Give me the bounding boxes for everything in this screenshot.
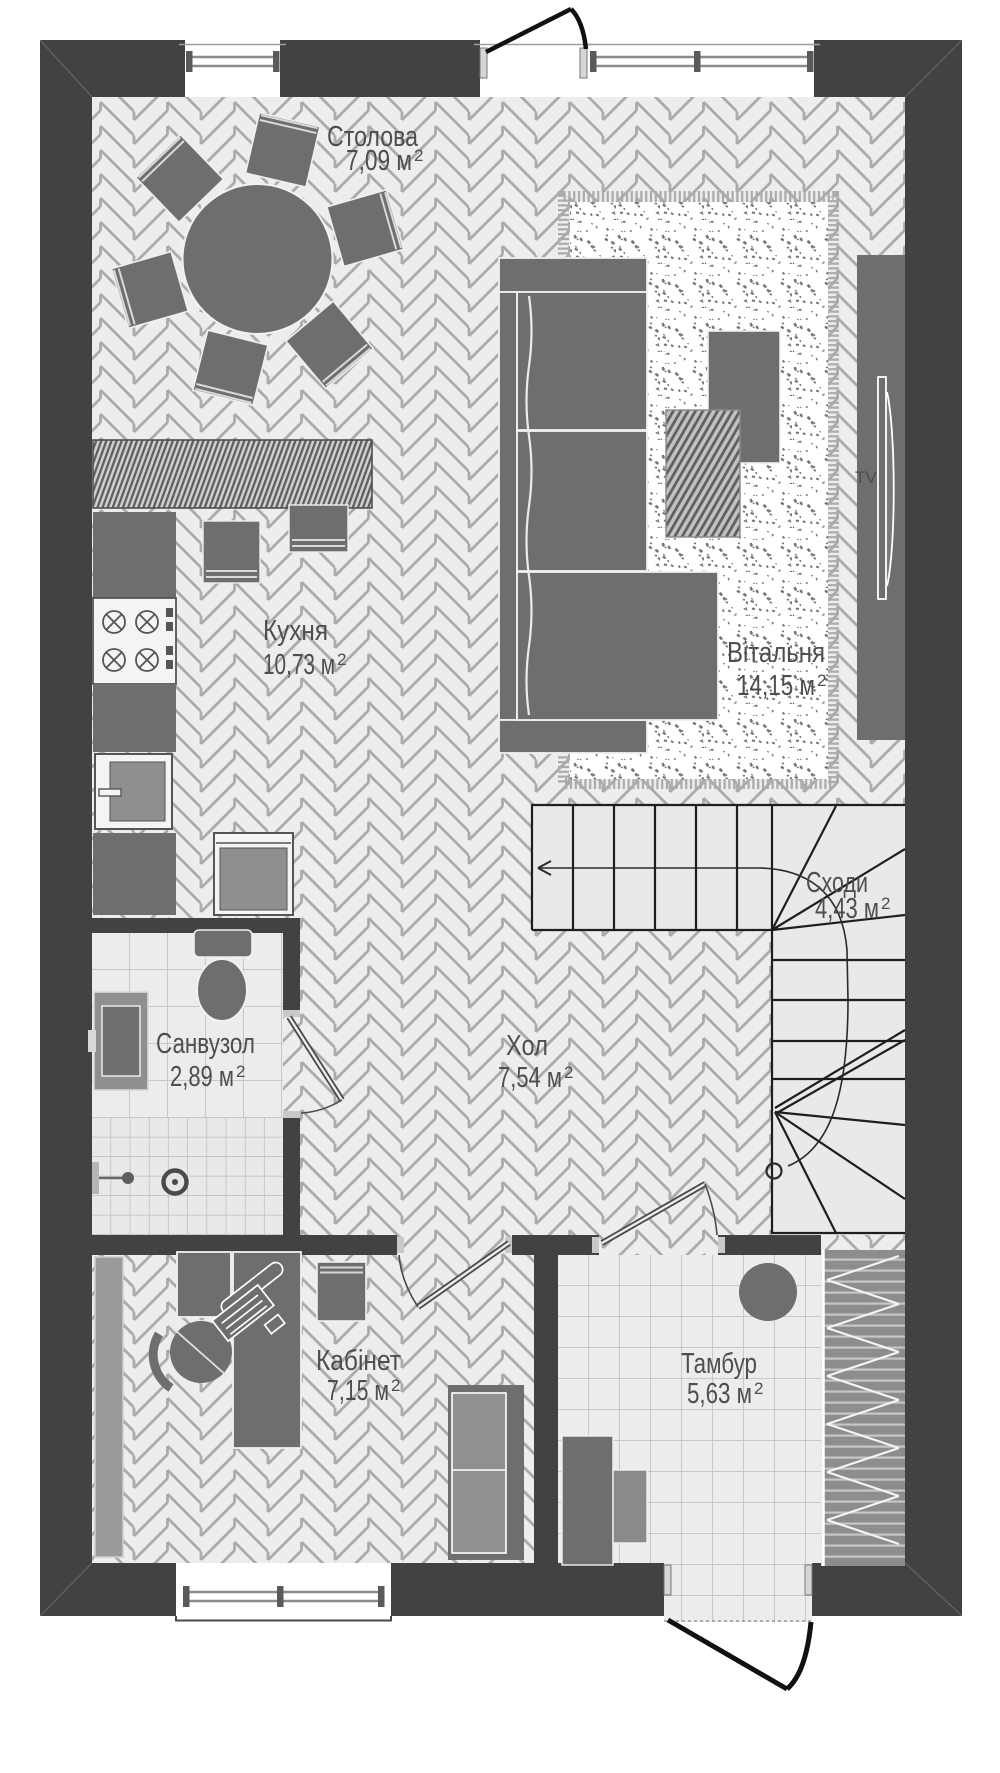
svg-text:Хол: Хол: [506, 1030, 548, 1062]
svg-text:Санвузол: Санвузол: [156, 1028, 255, 1060]
svg-text:Кухня: Кухня: [263, 615, 328, 647]
svg-text:Кабінет: Кабінет: [316, 1345, 401, 1377]
svg-text:4,43 м: 4,43 м: [815, 893, 879, 925]
svg-text:2: 2: [881, 894, 890, 913]
svg-text:7,15 м: 7,15 м: [327, 1375, 389, 1407]
svg-text:2: 2: [817, 671, 826, 690]
svg-text:7,54 м: 7,54 м: [498, 1062, 562, 1094]
svg-text:2: 2: [564, 1063, 573, 1082]
svg-text:14,15 м: 14,15 м: [737, 670, 815, 702]
svg-text:2: 2: [337, 650, 346, 669]
svg-text:10,73 м: 10,73 м: [263, 649, 335, 681]
svg-text:5,63 м: 5,63 м: [687, 1378, 752, 1410]
svg-text:Тамбур: Тамбур: [681, 1348, 757, 1380]
svg-text:2: 2: [391, 1376, 400, 1395]
svg-text:2: 2: [414, 146, 423, 165]
svg-text:2: 2: [754, 1379, 763, 1398]
svg-text:2: 2: [236, 1062, 245, 1081]
svg-text:TV: TV: [855, 468, 877, 487]
svg-text:7,09 м: 7,09 м: [346, 145, 412, 177]
svg-text:2,89 м: 2,89 м: [170, 1061, 234, 1093]
svg-text:Вітальня: Вітальня: [727, 637, 825, 669]
